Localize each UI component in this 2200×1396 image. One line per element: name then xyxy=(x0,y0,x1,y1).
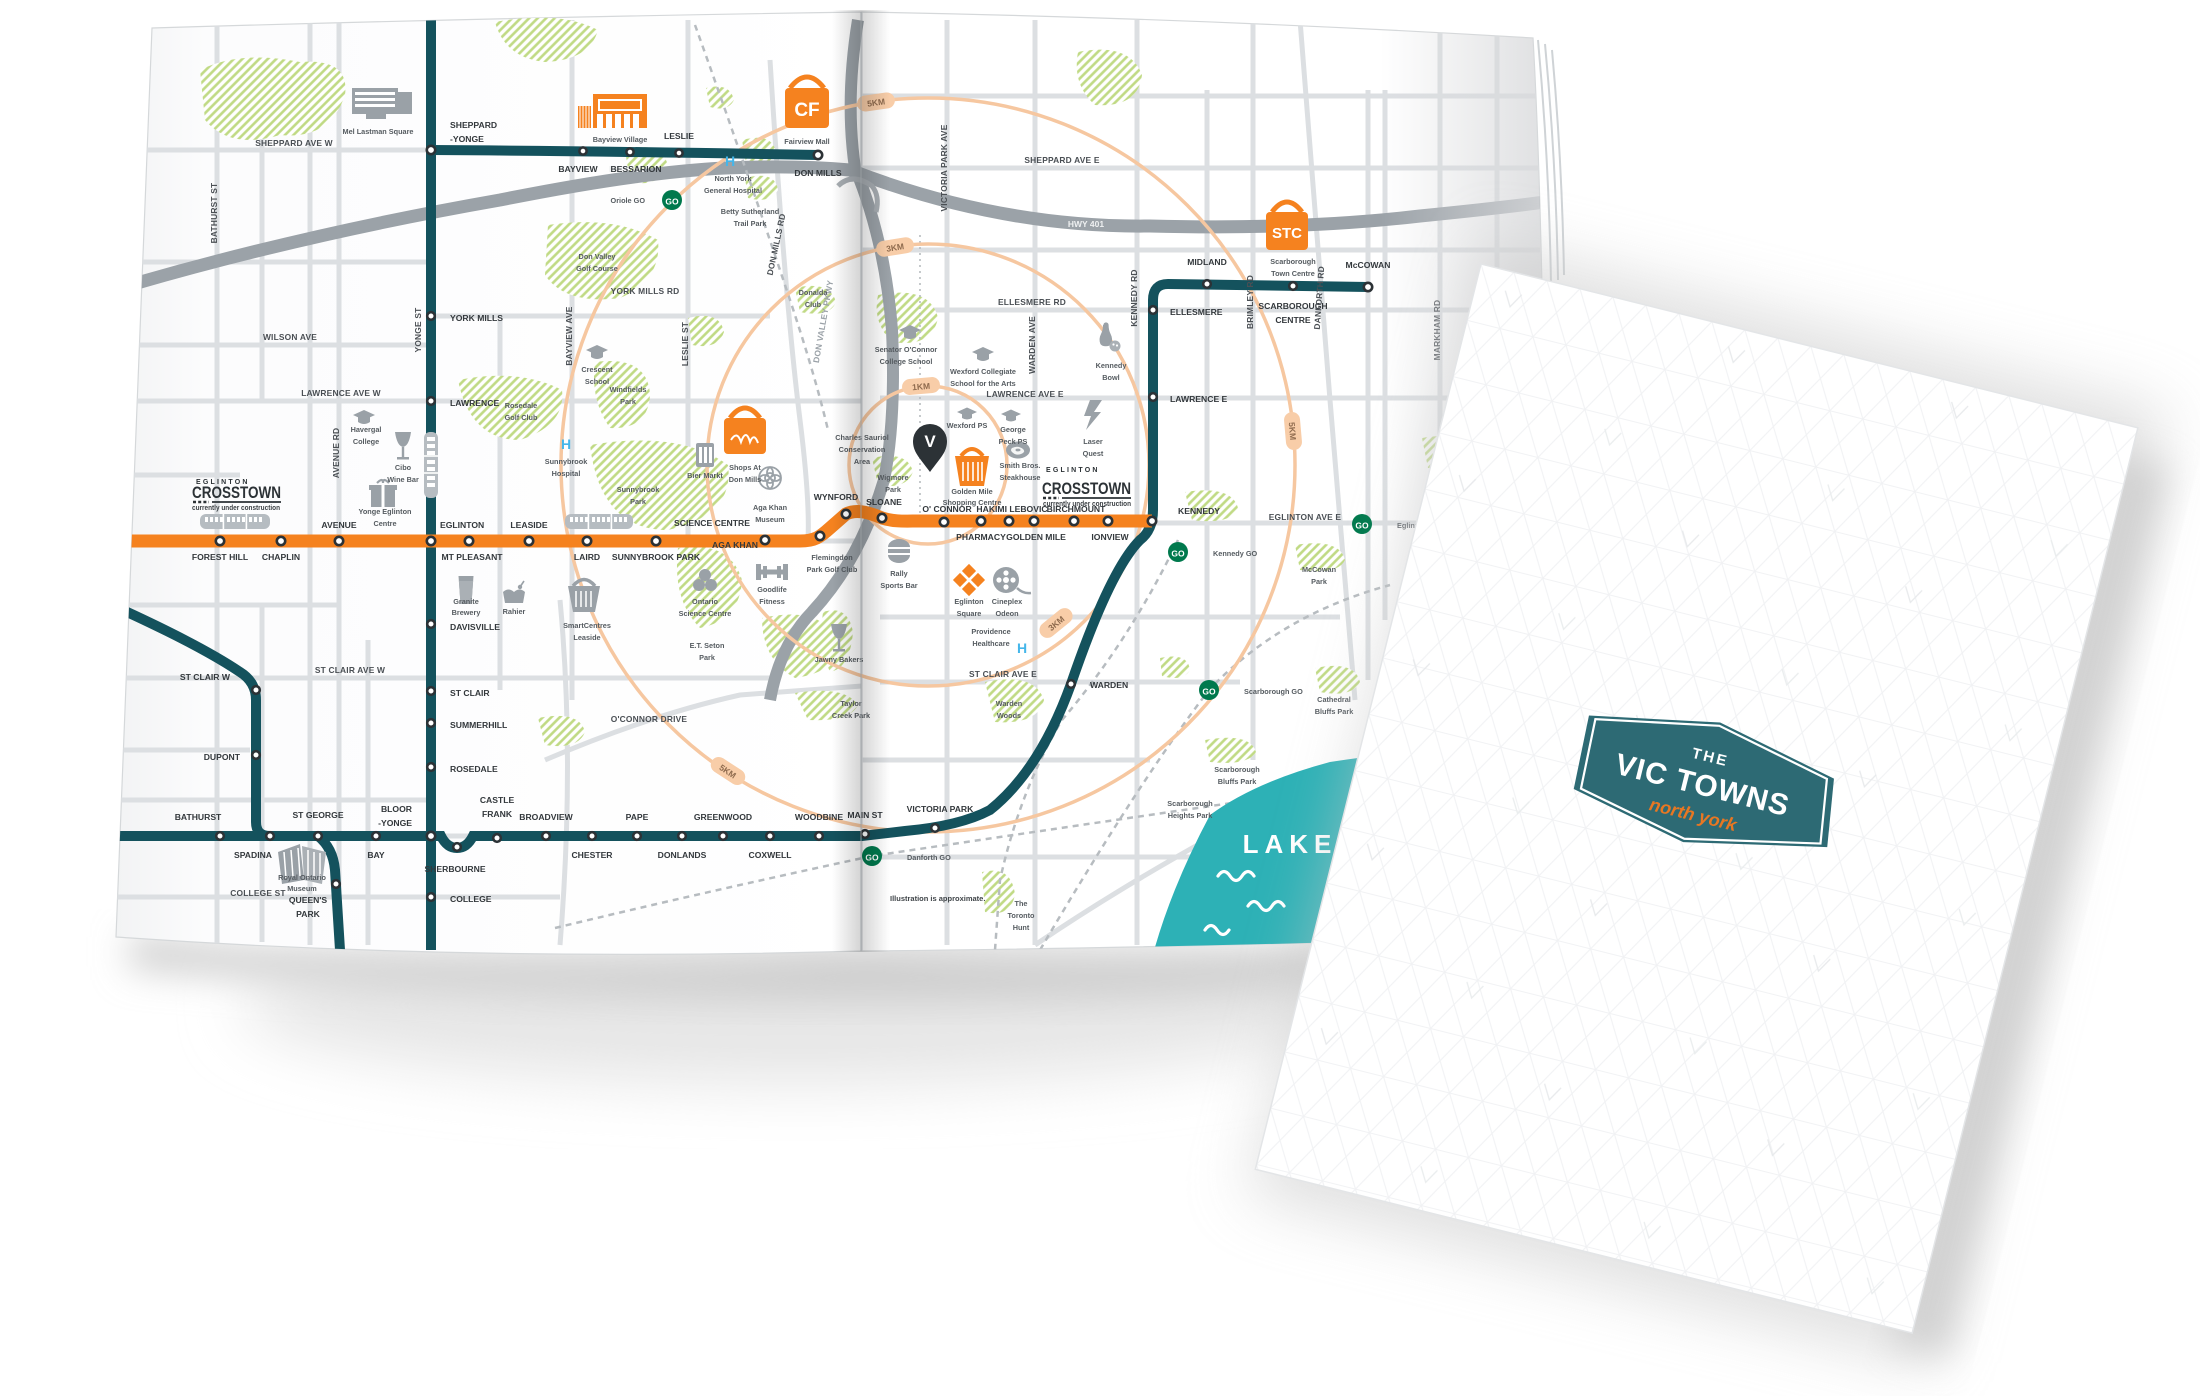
svg-text:ST CLAIR W: ST CLAIR W xyxy=(180,672,231,682)
svg-text:Goodlife: Goodlife xyxy=(757,585,787,594)
svg-text:BAY: BAY xyxy=(367,850,385,860)
svg-text:BATHURST ST: BATHURST ST xyxy=(209,182,219,243)
svg-text:SUMMERHILL: SUMMERHILL xyxy=(450,720,507,730)
svg-text:Scarborough: Scarborough xyxy=(1214,765,1259,774)
svg-text:Wexford PS: Wexford PS xyxy=(947,421,988,430)
svg-text:GO: GO xyxy=(665,197,679,207)
svg-text:LAWRENCE AVE E: LAWRENCE AVE E xyxy=(986,389,1063,399)
svg-text:Royal Ontario: Royal Ontario xyxy=(278,873,326,882)
svg-text:YONGE ST: YONGE ST xyxy=(413,307,423,353)
svg-text:H: H xyxy=(1017,640,1027,656)
svg-text:LAWRENCE: LAWRENCE xyxy=(450,398,499,408)
svg-text:BROADVIEW: BROADVIEW xyxy=(519,812,573,822)
svg-text:MIDLAND: MIDLAND xyxy=(1187,257,1227,267)
svg-text:Golden Mile: Golden Mile xyxy=(951,487,992,496)
svg-text:MT PLEASANT: MT PLEASANT xyxy=(441,552,503,562)
svg-text:COLLEGE ST: COLLEGE ST xyxy=(230,888,286,898)
svg-text:Museum: Museum xyxy=(755,515,785,524)
svg-text:AVENUE RD: AVENUE RD xyxy=(331,428,341,479)
svg-text:Museum: Museum xyxy=(287,884,317,893)
svg-text:Rosedale: Rosedale xyxy=(505,401,537,410)
svg-text:ELLESMERE RD: ELLESMERE RD xyxy=(998,297,1066,307)
svg-text:Bluffs Park: Bluffs Park xyxy=(1315,707,1354,716)
svg-text:LAWRENCE E: LAWRENCE E xyxy=(1170,394,1228,404)
svg-text:STC: STC xyxy=(1272,225,1302,242)
svg-text:McCowan: McCowan xyxy=(1302,565,1336,574)
svg-text:Havergal: Havergal xyxy=(351,425,382,434)
svg-text:Shopping Centre: Shopping Centre xyxy=(943,498,1002,507)
svg-text:Odeon: Odeon xyxy=(995,609,1018,618)
svg-text:YORK MILLS: YORK MILLS xyxy=(450,313,503,323)
svg-text:GO: GO xyxy=(1202,687,1216,697)
svg-text:Aga Khan: Aga Khan xyxy=(753,503,787,512)
svg-text:LEASIDE: LEASIDE xyxy=(510,520,548,530)
svg-text:LESLIE: LESLIE xyxy=(664,131,694,141)
svg-text:IONVIEW: IONVIEW xyxy=(1091,532,1129,542)
svg-text:BRIMLEY RD: BRIMLEY RD xyxy=(1245,275,1255,329)
svg-text:Hunt: Hunt xyxy=(1013,923,1030,932)
svg-text:FOREST HILL: FOREST HILL xyxy=(192,552,248,562)
svg-text:PAPE: PAPE xyxy=(626,812,649,822)
svg-text:Woods: Woods xyxy=(997,711,1021,720)
svg-text:ROSEDALE: ROSEDALE xyxy=(450,764,498,774)
svg-text:CHAPLIN: CHAPLIN xyxy=(262,552,300,562)
svg-text:CASTLE: CASTLE xyxy=(480,795,515,805)
svg-text:Sunnybrook: Sunnybrook xyxy=(545,457,589,466)
svg-text:5KM: 5KM xyxy=(1287,422,1299,441)
svg-text:BAYVIEW AVE: BAYVIEW AVE xyxy=(564,306,574,365)
svg-text:Wine Bar: Wine Bar xyxy=(387,475,419,484)
svg-text:GO: GO xyxy=(1355,521,1369,531)
svg-text:School: School xyxy=(585,377,609,386)
svg-text:Mel Lastman Square: Mel Lastman Square xyxy=(343,127,414,136)
svg-text:Yonge Eglinton: Yonge Eglinton xyxy=(359,507,412,516)
svg-text:SHEPPARD AVE E: SHEPPARD AVE E xyxy=(1024,155,1099,165)
svg-text:GOLDEN MILE: GOLDEN MILE xyxy=(1006,532,1066,542)
svg-text:-YONGE: -YONGE xyxy=(378,818,412,828)
svg-text:Granite: Granite xyxy=(453,597,479,606)
svg-text:HWY 401: HWY 401 xyxy=(1068,219,1104,229)
svg-text:Toronto: Toronto xyxy=(1007,911,1035,920)
svg-text:SHERBOURNE: SHERBOURNE xyxy=(424,864,485,874)
svg-text:KENNEDY: KENNEDY xyxy=(1178,506,1220,516)
svg-text:FRANK: FRANK xyxy=(482,809,513,819)
svg-text:Centre: Centre xyxy=(373,519,396,528)
svg-text:Providence: Providence xyxy=(971,627,1010,636)
svg-text:O'CONNOR DRIVE: O'CONNOR DRIVE xyxy=(611,714,688,724)
svg-text:LAWRENCE AVE W: LAWRENCE AVE W xyxy=(301,388,381,398)
svg-text:EGLINTON: EGLINTON xyxy=(440,520,484,530)
svg-text:Laser: Laser xyxy=(1083,437,1103,446)
svg-text:Leaside: Leaside xyxy=(573,633,600,642)
svg-text:DUPONT: DUPONT xyxy=(204,752,241,762)
svg-text:LAIRD: LAIRD xyxy=(574,552,600,562)
svg-text:Windfields: Windfields xyxy=(610,385,647,394)
svg-text:Scarborough: Scarborough xyxy=(1167,799,1212,808)
svg-text:COLLEGE: COLLEGE xyxy=(450,894,492,904)
svg-text:Heights Park: Heights Park xyxy=(1168,811,1214,820)
svg-text:SHEPPARD AVE W: SHEPPARD AVE W xyxy=(255,138,333,148)
svg-text:H: H xyxy=(725,153,735,169)
svg-text:Wexford Collegiate: Wexford Collegiate xyxy=(950,367,1016,376)
svg-text:Cathedral: Cathedral xyxy=(1317,695,1351,704)
svg-text:Bier Markt: Bier Markt xyxy=(687,471,723,480)
svg-text:PHARMACY: PHARMACY xyxy=(956,532,1006,542)
svg-text:Park: Park xyxy=(620,397,637,406)
svg-text:The: The xyxy=(1015,899,1028,908)
svg-text:LAKE: LAKE xyxy=(1243,829,1338,859)
svg-text:SHEPPARD: SHEPPARD xyxy=(450,120,497,130)
svg-text:Fitness: Fitness xyxy=(759,597,785,606)
svg-text:V: V xyxy=(924,432,936,451)
svg-text:COXWELL: COXWELL xyxy=(749,850,792,860)
svg-text:BIRCHMOUNT: BIRCHMOUNT xyxy=(1047,504,1106,514)
svg-text:Park: Park xyxy=(1311,577,1328,586)
svg-text:SUNNYBROOK PARK: SUNNYBROOK PARK xyxy=(612,552,701,562)
svg-text:North York: North York xyxy=(714,174,752,183)
svg-text:ST CLAIR AVE E: ST CLAIR AVE E xyxy=(969,669,1037,679)
svg-text:Illustration is approximate.: Illustration is approximate. xyxy=(890,894,985,903)
svg-text:College: College xyxy=(353,437,379,446)
svg-text:Trail Park: Trail Park xyxy=(734,219,768,228)
svg-text:YORK MILLS RD: YORK MILLS RD xyxy=(611,286,680,296)
svg-text:Park: Park xyxy=(630,497,647,506)
svg-text:DONLANDS: DONLANDS xyxy=(658,850,707,860)
svg-text:currently under construction: currently under construction xyxy=(192,503,280,512)
svg-text:Healthcare: Healthcare xyxy=(972,639,1009,648)
svg-text:BATHURST: BATHURST xyxy=(175,812,222,822)
svg-text:ST CLAIR AVE W: ST CLAIR AVE W xyxy=(315,665,385,675)
svg-text:Town Centre: Town Centre xyxy=(1271,269,1315,278)
svg-text:Scarborough: Scarborough xyxy=(1270,257,1315,266)
svg-text:WILSON AVE: WILSON AVE xyxy=(263,332,317,342)
svg-text:VICTORIA PARK: VICTORIA PARK xyxy=(907,804,974,814)
svg-text:QUEEN'S: QUEEN'S xyxy=(289,895,328,905)
svg-text:AGA KHAN: AGA KHAN xyxy=(712,540,758,550)
svg-text:Scarborough GO: Scarborough GO xyxy=(1244,687,1303,696)
svg-text:BAYVIEW: BAYVIEW xyxy=(558,164,598,174)
svg-text:CROSSTOWN: CROSSTOWN xyxy=(1042,480,1131,498)
svg-text:Golf Course: Golf Course xyxy=(576,264,618,273)
svg-text:GO: GO xyxy=(1171,549,1185,559)
svg-text:Shops At: Shops At xyxy=(729,463,761,472)
svg-text:AVENUE: AVENUE xyxy=(321,520,356,530)
svg-text:EGLINTON AVE E: EGLINTON AVE E xyxy=(1269,512,1342,522)
svg-text:WARDEN: WARDEN xyxy=(1090,680,1128,690)
svg-text:Oriole GO: Oriole GO xyxy=(611,196,646,205)
svg-text:ST GEORGE: ST GEORGE xyxy=(292,810,343,820)
svg-text:Donalda: Donalda xyxy=(799,288,829,297)
svg-text:Park: Park xyxy=(699,653,716,662)
svg-text:Club: Club xyxy=(805,300,822,309)
svg-text:H: H xyxy=(561,436,571,452)
svg-text:Don Mills: Don Mills xyxy=(729,475,761,484)
svg-text:SPADINA: SPADINA xyxy=(234,850,272,860)
svg-text:Golf Club: Golf Club xyxy=(505,413,538,422)
svg-text:-YONGE: -YONGE xyxy=(450,134,484,144)
svg-text:Crescent: Crescent xyxy=(581,365,613,374)
svg-text:Rahier: Rahier xyxy=(503,607,526,616)
svg-text:Betty Sutherland: Betty Sutherland xyxy=(721,207,779,216)
svg-text:Smith Bros.: Smith Bros. xyxy=(1000,461,1041,470)
svg-text:ST CLAIR: ST CLAIR xyxy=(450,688,490,698)
svg-text:BLOOR: BLOOR xyxy=(381,804,413,814)
svg-text:EGLINTON: EGLINTON xyxy=(1046,467,1100,474)
svg-text:WARDEN AVE: WARDEN AVE xyxy=(1027,316,1037,374)
svg-text:SCIENCE CENTRE: SCIENCE CENTRE xyxy=(674,518,750,528)
svg-text:Ontario: Ontario xyxy=(692,597,718,606)
svg-text:SmartCentres: SmartCentres xyxy=(563,621,611,630)
svg-text:Don Valley: Don Valley xyxy=(579,252,617,261)
svg-text:Bowl: Bowl xyxy=(1102,373,1119,382)
svg-text:Warden: Warden xyxy=(996,699,1023,708)
svg-text:Cibo: Cibo xyxy=(395,463,412,472)
svg-text:Bluffs Park: Bluffs Park xyxy=(1218,777,1257,786)
svg-text:Fairview Mall: Fairview Mall xyxy=(784,137,829,146)
svg-text:School for the Arts: School for the Arts xyxy=(950,379,1015,388)
svg-text:CHESTER: CHESTER xyxy=(571,850,613,860)
svg-text:BESSARION: BESSARION xyxy=(610,164,661,174)
svg-text:PARK: PARK xyxy=(296,909,321,919)
svg-text:Bayview Village: Bayview Village xyxy=(593,135,648,144)
svg-text:E.T. Seton: E.T. Seton xyxy=(690,641,725,650)
svg-text:VICTORIA PARK AVE: VICTORIA PARK AVE xyxy=(939,124,949,211)
svg-text:ELLESMERE: ELLESMERE xyxy=(1170,307,1223,317)
svg-text:George: George xyxy=(1000,425,1026,434)
svg-text:Danforth GO: Danforth GO xyxy=(907,853,951,862)
svg-text:Kennedy GO: Kennedy GO xyxy=(1213,549,1258,558)
svg-text:CROSSTOWN: CROSSTOWN xyxy=(192,484,281,502)
svg-text:Cineplex: Cineplex xyxy=(992,597,1022,606)
svg-text:Kennedy: Kennedy xyxy=(1096,361,1128,370)
svg-text:GREENWOOD: GREENWOOD xyxy=(694,812,752,822)
svg-text:CF: CF xyxy=(794,100,819,121)
svg-text:Steakhouse: Steakhouse xyxy=(1000,473,1041,482)
svg-text:CENTRE: CENTRE xyxy=(1275,315,1311,325)
svg-text:Rally: Rally xyxy=(890,569,908,578)
svg-text:LESLIE ST: LESLIE ST xyxy=(680,321,690,366)
svg-text:Science Centre: Science Centre xyxy=(679,609,732,618)
svg-text:General Hospital: General Hospital xyxy=(704,186,762,195)
svg-text:Sunnybrook: Sunnybrook xyxy=(617,485,661,494)
svg-text:Peck PS: Peck PS xyxy=(999,437,1028,446)
svg-text:Square: Square xyxy=(957,609,982,618)
svg-text:Hospital: Hospital xyxy=(552,469,581,478)
svg-text:1KM: 1KM xyxy=(912,381,931,393)
svg-text:Brewery: Brewery xyxy=(452,608,482,617)
svg-text:KENNEDY RD: KENNEDY RD xyxy=(1129,269,1139,326)
svg-text:Eglinton: Eglinton xyxy=(954,597,983,606)
svg-text:DAVISVILLE: DAVISVILLE xyxy=(450,622,500,632)
svg-text:Quest: Quest xyxy=(1083,449,1104,458)
